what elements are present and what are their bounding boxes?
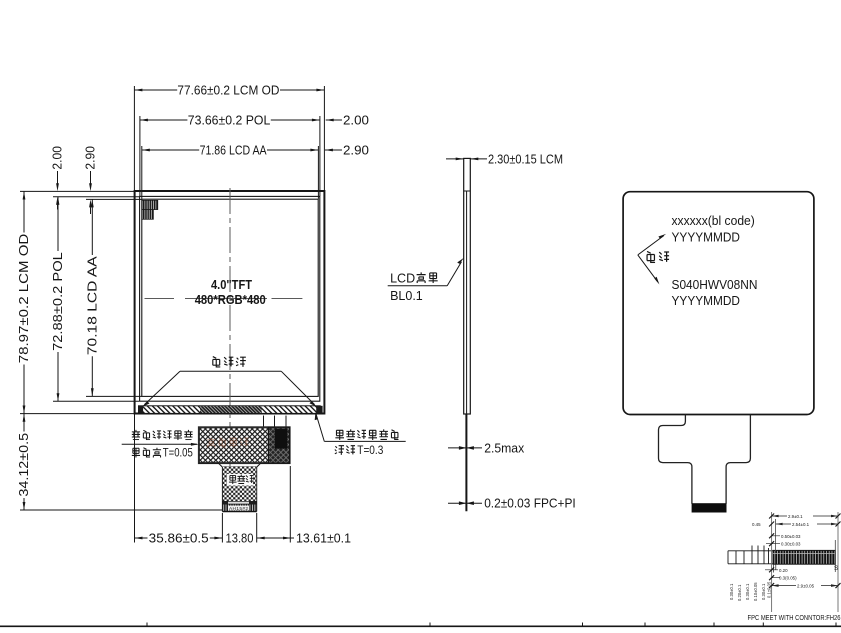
svg-text:xxxxxx(bl code): xxxxxx(bl code) [672, 214, 755, 228]
svg-text:0.50±0.03: 0.50±0.03 [781, 534, 801, 539]
svg-text:FPC MEET WITH CONNTOR:FH26: FPC MEET WITH CONNTOR:FH26 [748, 615, 841, 622]
svg-text:35.86±0.5: 35.86±0.5 [149, 531, 209, 545]
svg-text:0.45: 0.45 [752, 522, 761, 527]
svg-text:2.00: 2.00 [51, 146, 65, 170]
svg-text:0.30±0.1: 0.30±0.1 [761, 583, 766, 600]
svg-text:T=0.05: T=0.05 [163, 448, 193, 460]
svg-text:0.30±0.1: 0.30±0.1 [745, 583, 750, 600]
svg-text:78.97±0.2 LCM OD: 78.97±0.2 LCM OD [17, 234, 31, 364]
svg-text:0.30±0.03: 0.30±0.03 [781, 542, 801, 547]
svg-text:LCD: LCD [390, 272, 415, 286]
svg-text:2.5max: 2.5max [484, 441, 525, 455]
svg-text:34.12±0.5: 34.12±0.5 [17, 433, 31, 497]
svg-text:2.9±0.1: 2.9±0.1 [788, 514, 803, 519]
svg-text:480*RGB*480: 480*RGB*480 [195, 292, 266, 307]
svg-text:2.9±0.05: 2.9±0.05 [797, 584, 815, 589]
svg-text:0.20: 0.20 [779, 568, 788, 573]
svg-text:YYYYMMDD: YYYYMMDD [672, 294, 741, 308]
svg-text:2.30±0.15 LCM: 2.30±0.15 LCM [488, 152, 563, 166]
svg-text:0.3(0.05): 0.3(0.05) [779, 576, 797, 581]
svg-text:73.66±0.2 POL: 73.66±0.2 POL [188, 113, 271, 127]
svg-text:2.54±0.1: 2.54±0.1 [792, 522, 810, 527]
svg-text:0.10±0.05: 0.10±0.05 [753, 582, 758, 601]
svg-text:13.61±0.1: 13.61±0.1 [296, 531, 351, 545]
svg-text:2.00: 2.00 [343, 113, 369, 127]
svg-text:S040HWV08NN: S040HWV08NN [672, 278, 758, 292]
svg-text:YYYYMMDD: YYYYMMDD [672, 230, 741, 244]
svg-text:2.90: 2.90 [84, 146, 98, 170]
svg-text:71.86 LCD AA: 71.86 LCD AA [200, 143, 268, 157]
svg-text:0.30±0.1: 0.30±0.1 [729, 583, 734, 600]
svg-text:77.66±0.2 LCM OD: 77.66±0.2 LCM OD [177, 83, 279, 97]
svg-text:2.90: 2.90 [343, 143, 369, 157]
svg-text:72.88±0.2 POL: 72.88±0.2 POL [51, 252, 65, 351]
svg-text:S: S [834, 565, 839, 572]
svg-text:0.2±0.03 FPC+PI: 0.2±0.03 FPC+PI [484, 497, 576, 511]
svg-text:13.80: 13.80 [226, 531, 254, 545]
svg-text:0.1±0.05: 0.1±0.05 [767, 581, 772, 598]
svg-text:4.0"TFT: 4.0"TFT [211, 277, 252, 292]
svg-text:70.18 LCD AA: 70.18 LCD AA [86, 256, 100, 356]
svg-text:0.20±0.1: 0.20±0.1 [737, 584, 742, 601]
svg-text:T=0.3: T=0.3 [357, 445, 383, 457]
svg-text:BL0.1: BL0.1 [390, 289, 423, 303]
